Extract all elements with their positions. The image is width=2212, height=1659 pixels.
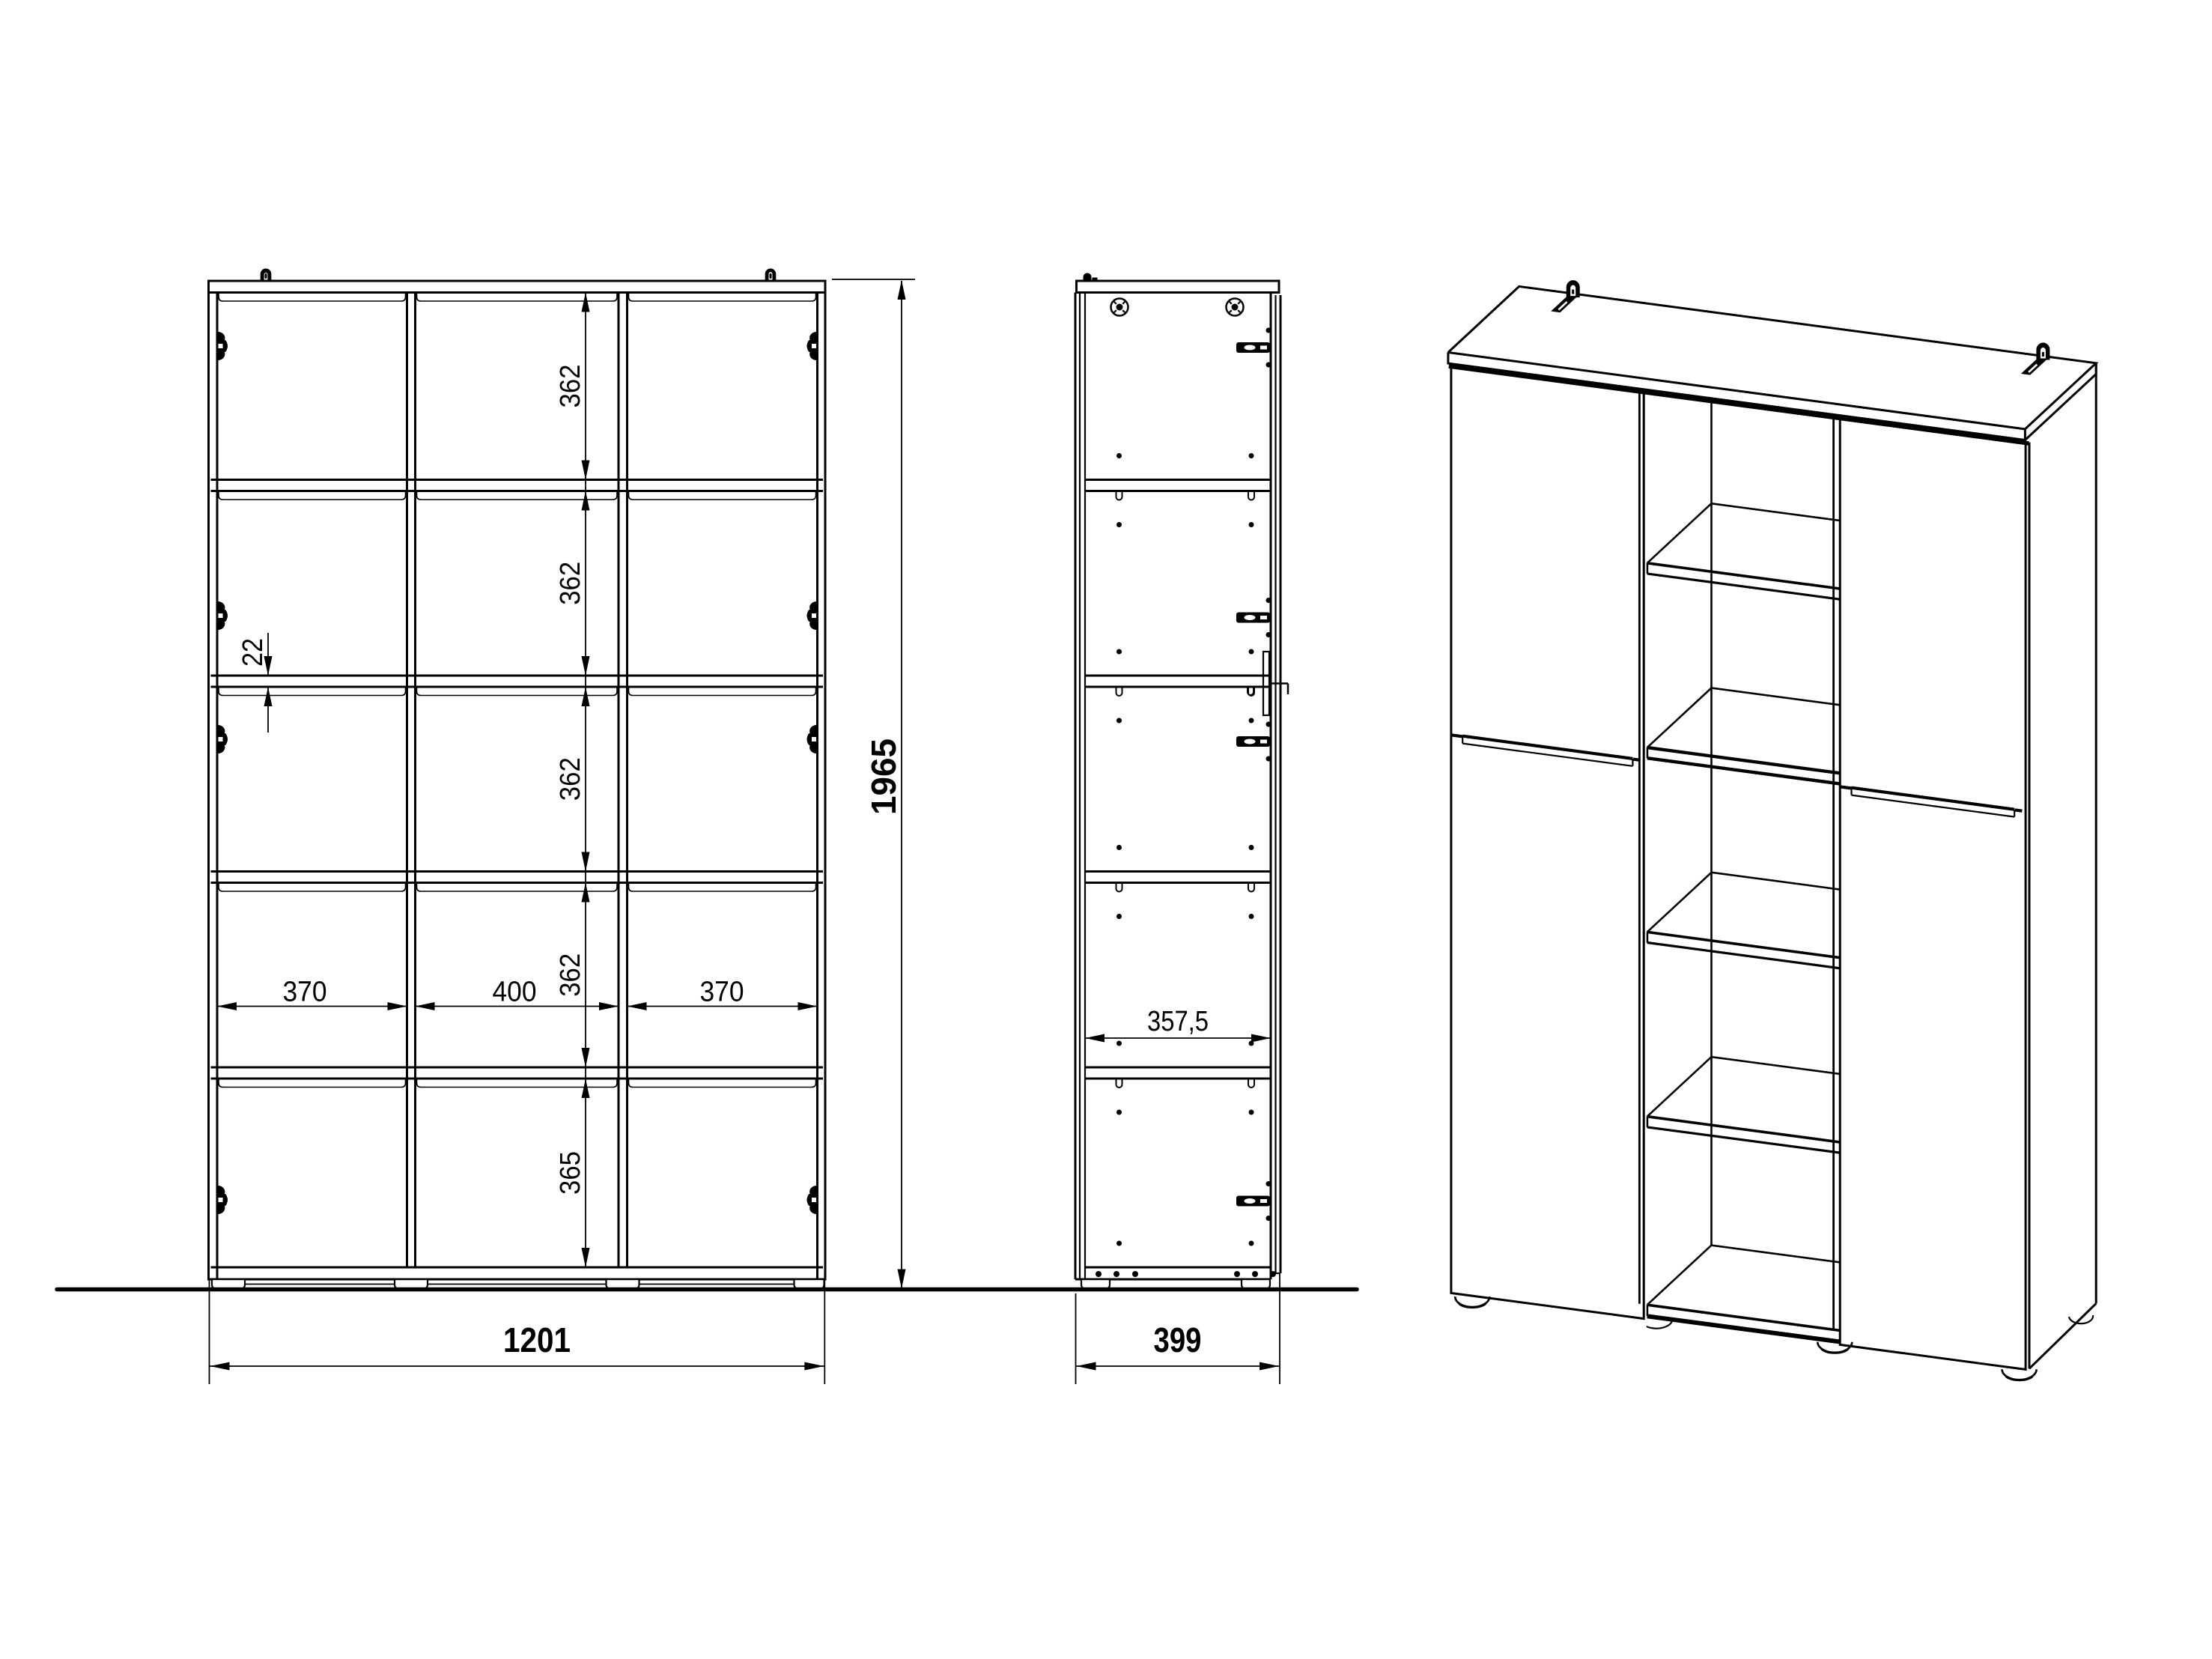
svg-text:22: 22 [237,638,269,667]
svg-text:362: 362 [555,757,586,801]
svg-text:357,5: 357,5 [1147,1006,1209,1037]
svg-text:365: 365 [555,1151,586,1195]
svg-text:400: 400 [493,977,537,1008]
svg-text:1201: 1201 [503,1320,571,1359]
svg-text:399: 399 [1154,1320,1202,1359]
svg-text:370: 370 [700,977,744,1008]
svg-text:370: 370 [283,977,327,1008]
svg-text:362: 362 [555,953,586,997]
svg-text:362: 362 [555,562,586,605]
svg-text:1965: 1965 [864,738,903,815]
svg-text:362: 362 [555,365,586,408]
